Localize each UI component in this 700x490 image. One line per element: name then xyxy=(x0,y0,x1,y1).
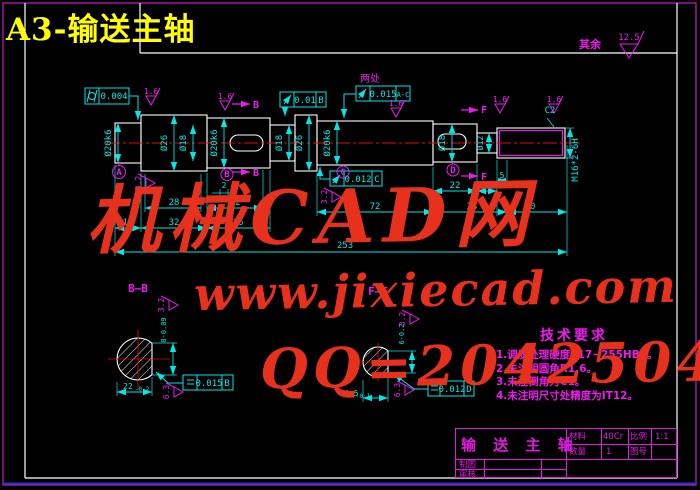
surface-note-text: 其余 xyxy=(579,37,602,51)
dia-label-6: Ø26 xyxy=(294,135,305,151)
dia-label-3: Ø18 xyxy=(178,135,189,151)
secb-dim-22: 22 xyxy=(123,382,133,391)
title-block-line xyxy=(651,429,652,459)
gdt-runout1-datum: B xyxy=(318,96,323,106)
gdt-runout3-datum: C xyxy=(374,175,379,185)
symmetry-icon xyxy=(187,380,194,384)
gdt-runout2-datum: A-C xyxy=(397,91,410,99)
sf-5: 1.6 xyxy=(547,95,562,104)
gdt-leader-3 xyxy=(344,94,356,118)
circular-runout-icon xyxy=(284,95,291,104)
section-b-arrow-bottom-label: B xyxy=(253,168,259,179)
datum-b-letter: B xyxy=(224,170,230,180)
secf-dim-14-5-tol: -0.1 xyxy=(356,393,371,400)
sf-4: 1.6 xyxy=(493,95,508,104)
circular-runout-icon xyxy=(359,89,366,98)
cad-drawing: 283221132362265723430253Ø20k6Ø26Ø18Ø20k6… xyxy=(0,0,700,490)
dia-label-2: Ø26 xyxy=(159,135,170,151)
tech-req-item: 2.未注明圆角R1.6。 xyxy=(496,363,696,377)
sf-2: 1.6 xyxy=(218,92,233,101)
tech-req-item: 4.未注明尺寸处精度为IT12。 xyxy=(496,390,696,404)
section-b-title: B—B xyxy=(128,282,148,295)
section-f-arrow-top-label: F xyxy=(481,105,487,116)
technical-requirements-title: 技术要求 xyxy=(540,325,696,345)
sf-default-value: 12.5 xyxy=(618,33,640,43)
gdt-symmetry2-datum: D xyxy=(466,385,471,395)
sf-7: 3.2 xyxy=(320,190,329,205)
dia-label-8: Ø18 xyxy=(437,135,448,151)
gdt-leader-4 xyxy=(320,167,330,179)
material-value: 40Cr xyxy=(603,432,627,442)
quantity-value: 1 xyxy=(606,447,624,457)
part-name: 输 送 主 轴 xyxy=(461,434,579,455)
scale-value: 1:1 xyxy=(655,432,677,442)
dia-label-7: Ø20k6 xyxy=(322,129,333,156)
gdt-runout1-value: 0.01 xyxy=(294,96,316,106)
tech-req-item: 3.未注倒角为C1。 xyxy=(496,376,696,390)
dia-label-9: Ø12 xyxy=(475,136,485,151)
title-block-line xyxy=(601,429,602,459)
secb-dim-22-tol: -0.2 xyxy=(135,386,150,393)
title-block-line xyxy=(566,444,678,445)
title-block: 输 送 主 轴 材料 40Cr 比例 1:1 数量 1 图号 制图 审核 xyxy=(455,428,677,478)
dia-label-1: Ø20k6 xyxy=(103,129,114,156)
gdt-symmetry2-value: 0.012 xyxy=(438,385,465,395)
dim-30: 30 xyxy=(525,202,536,212)
dim-2: 2 xyxy=(222,181,227,190)
scale-label: 比例 xyxy=(630,432,650,442)
dim-11: 11 xyxy=(123,218,134,228)
quantity-label: 数量 xyxy=(569,447,599,457)
section-f-title: F—F xyxy=(368,285,388,298)
secb-dim-8: 8-0.09 xyxy=(160,317,168,342)
dia-label-4: Ø20k6 xyxy=(209,129,220,156)
gdt-symmetry1-datum: B xyxy=(224,379,229,389)
thread-callout: M16*2-6H xyxy=(571,138,581,181)
checked-by-label: 审核 xyxy=(459,470,483,480)
dim-34: 34 xyxy=(467,202,478,212)
technical-requirements: 技术要求 1.调质处理硬度217~255HBS。 2.未注明圆角R1.6。 3.… xyxy=(496,325,696,403)
sf-1: 1.6 xyxy=(144,87,159,96)
dim-5: 5 xyxy=(500,171,505,180)
tech-req-item: 1.调质处理硬度217~255HBS。 xyxy=(496,349,696,363)
title-block-line xyxy=(628,429,629,459)
dim-28: 28 xyxy=(169,198,180,208)
gdt-symmetry1-value: 0.015 xyxy=(195,379,222,389)
gdt-leader-5 xyxy=(156,372,183,383)
sf-11: 6.3 xyxy=(393,383,402,398)
gdt-leader-1 xyxy=(129,96,138,120)
dim-36: 36 xyxy=(233,218,244,228)
dim-22: 22 xyxy=(450,181,461,191)
material-label: 材料 xyxy=(569,432,599,442)
dim-32-top: 32 xyxy=(230,198,241,208)
title-block-line xyxy=(566,429,567,479)
cad-screenshot: { "frame": { "doc_title": "A3-输送主轴", "su… xyxy=(0,0,700,490)
drawing-number-label: 图号 xyxy=(630,447,650,457)
sf-9: 6.3 xyxy=(162,385,171,400)
section-f-arrow-bottom-label: F xyxy=(481,172,487,183)
page-title: A3-输送主轴 xyxy=(6,4,196,49)
section-b-arrow-top-label: B xyxy=(253,100,259,111)
datum-d-letter: D xyxy=(450,166,456,176)
dim-72: 72 xyxy=(370,202,381,212)
secf-dim-6: 6-0.2 xyxy=(398,323,406,344)
dim-32-bottom: 32 xyxy=(169,218,180,228)
symmetry-icon xyxy=(431,386,438,390)
title-block-line xyxy=(456,459,678,460)
dia-label-5: Ø18 xyxy=(274,135,285,151)
datum-a-letter: A xyxy=(116,168,122,178)
gdt-note-two-places: 两处 xyxy=(360,73,380,85)
datum-c-letter: C xyxy=(340,168,345,178)
chamfer-leader xyxy=(547,118,554,127)
sf-8: 3.2 xyxy=(157,298,166,313)
drawn-by-label: 制图 xyxy=(459,460,483,470)
dim-253: 253 xyxy=(337,241,353,251)
gdt-cylindricity-value: 0.004 xyxy=(100,92,127,102)
cylindricity-icon xyxy=(87,90,97,102)
sf-6: 3.2 xyxy=(134,176,143,191)
gdt-runout3-value: 0.012 xyxy=(344,175,371,185)
sf-3: 1.6 xyxy=(389,99,404,108)
chamfer-c2: C2 xyxy=(545,106,556,116)
